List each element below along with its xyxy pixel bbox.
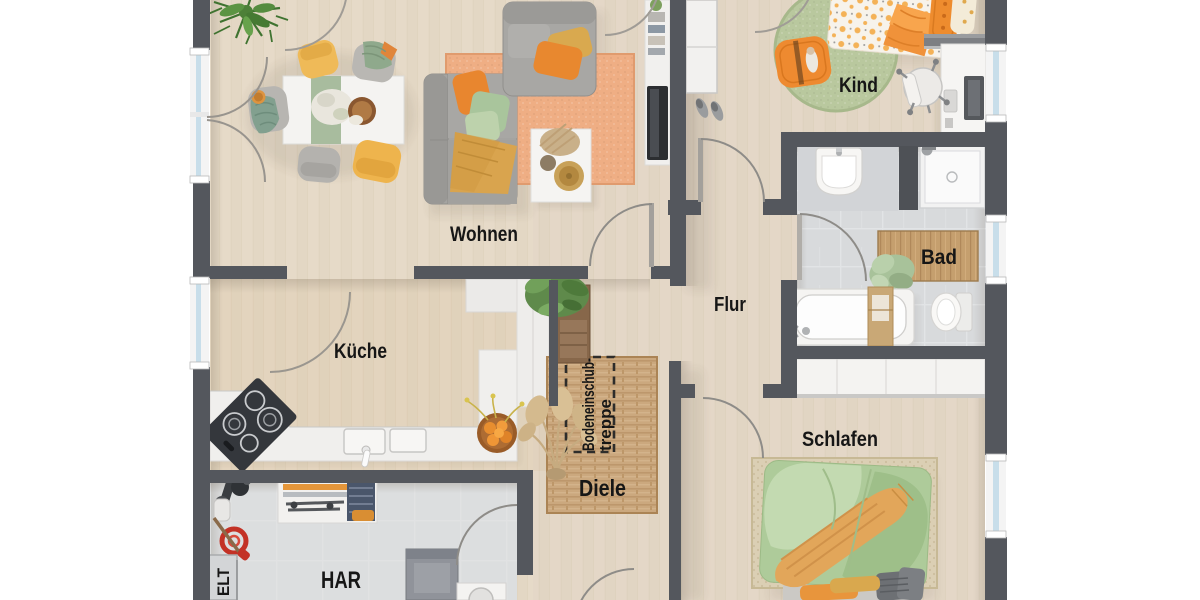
svg-text:HAR: HAR (321, 567, 361, 594)
svg-text:treppe: treppe (596, 399, 615, 451)
svg-text:ELT: ELT (214, 567, 233, 596)
svg-text:Wohnen: Wohnen (450, 223, 518, 246)
svg-text:Küche: Küche (334, 340, 387, 363)
svg-text:Flur: Flur (714, 294, 746, 316)
svg-text:Schlafen: Schlafen (802, 428, 878, 451)
svg-text:Kind: Kind (839, 74, 878, 97)
svg-text:Bad: Bad (921, 246, 957, 269)
svg-text:Diele: Diele (579, 475, 626, 501)
